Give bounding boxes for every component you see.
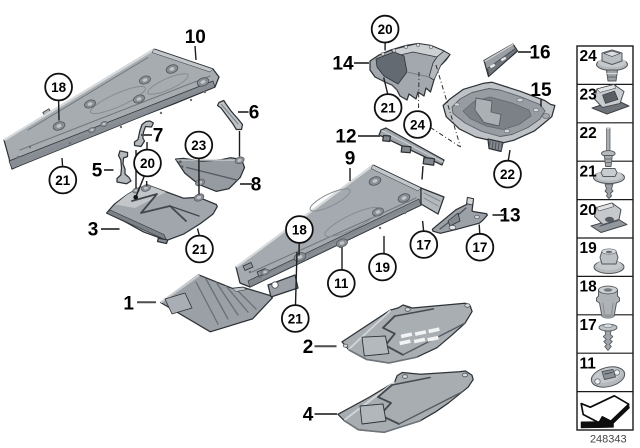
svg-text:248343: 248343	[590, 434, 627, 446]
svg-text:8: 8	[251, 175, 262, 196]
svg-text:18: 18	[51, 80, 67, 95]
svg-text:7: 7	[153, 126, 164, 147]
svg-text:22: 22	[580, 125, 597, 142]
svg-text:23: 23	[580, 87, 598, 104]
svg-text:18: 18	[292, 222, 308, 237]
svg-text:4: 4	[303, 405, 314, 426]
svg-text:24: 24	[580, 48, 598, 65]
svg-text:12: 12	[335, 127, 356, 148]
svg-text:15: 15	[530, 80, 552, 101]
svg-text:16: 16	[529, 43, 550, 64]
svg-text:18: 18	[580, 279, 598, 296]
svg-text:5: 5	[92, 161, 103, 182]
svg-text:19: 19	[375, 260, 390, 275]
svg-text:11: 11	[580, 355, 597, 372]
svg-text:10: 10	[185, 27, 206, 48]
svg-text:21: 21	[55, 173, 71, 188]
svg-text:24: 24	[410, 117, 426, 132]
svg-text:17: 17	[580, 317, 597, 334]
svg-text:21: 21	[580, 163, 598, 180]
svg-text:6: 6	[249, 103, 260, 124]
svg-text:14: 14	[332, 54, 354, 75]
svg-text:20: 20	[378, 22, 393, 37]
svg-text:20: 20	[140, 156, 155, 171]
svg-text:3: 3	[88, 220, 99, 241]
svg-text:11: 11	[334, 276, 349, 291]
svg-text:22: 22	[500, 167, 515, 182]
svg-text:17: 17	[472, 240, 487, 255]
svg-text:21: 21	[192, 242, 208, 257]
svg-text:9: 9	[345, 149, 356, 170]
svg-text:21: 21	[288, 311, 304, 326]
svg-text:23: 23	[191, 138, 207, 153]
svg-text:21: 21	[381, 100, 397, 115]
svg-text:17: 17	[416, 237, 431, 252]
svg-text:1: 1	[123, 294, 134, 315]
svg-text:19: 19	[580, 240, 598, 257]
svg-text:2: 2	[303, 337, 314, 358]
svg-text:20: 20	[580, 202, 597, 219]
